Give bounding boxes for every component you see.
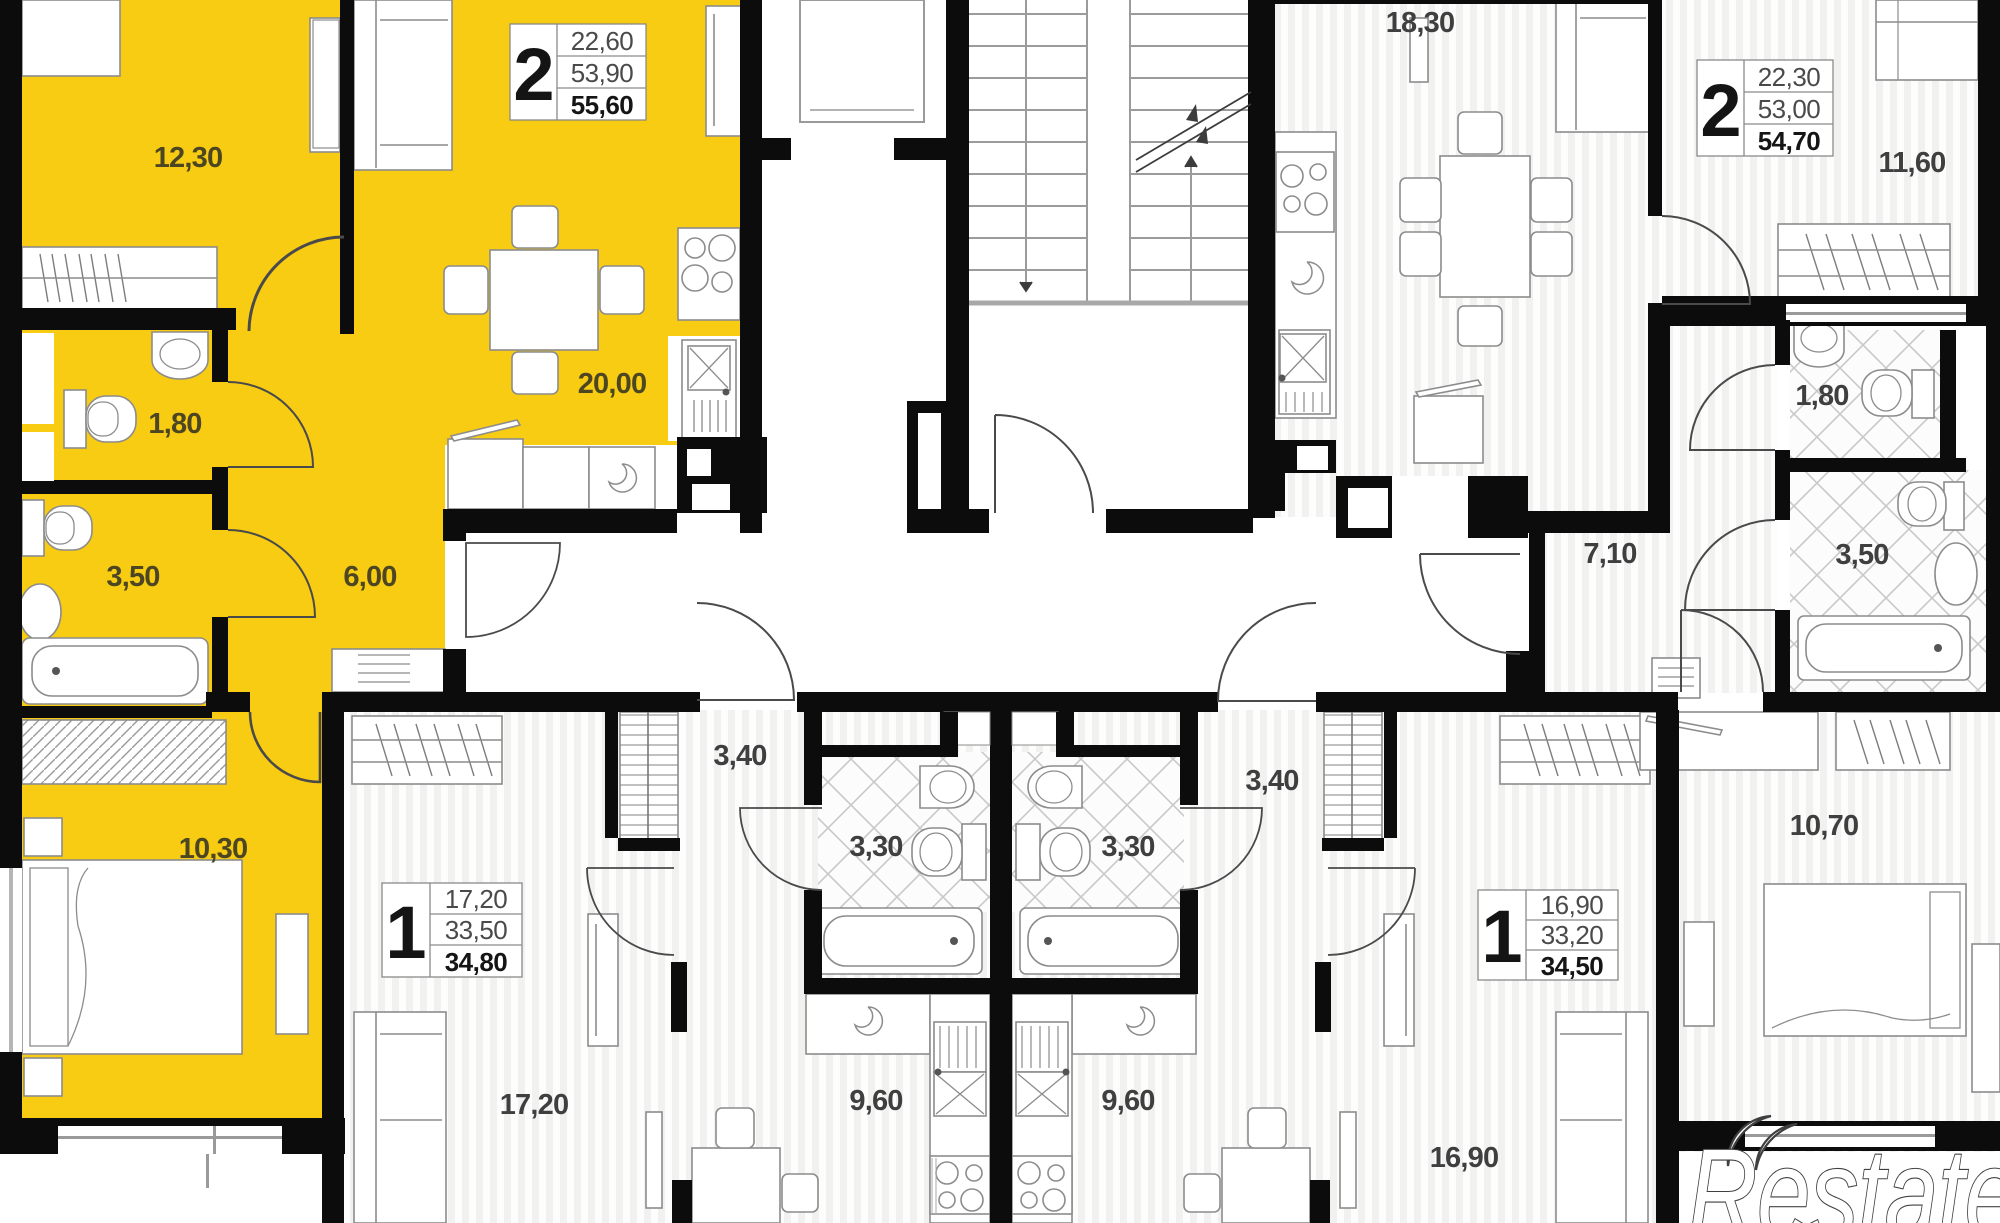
svg-text:12,30: 12,30 [154, 142, 223, 174]
svg-text:22,60: 22,60 [571, 26, 634, 56]
svg-text:1: 1 [1481, 895, 1522, 978]
svg-text:22,30: 22,30 [1758, 62, 1821, 92]
svg-text:9,60: 9,60 [1101, 1085, 1154, 1117]
svg-text:17,20: 17,20 [500, 1089, 569, 1121]
svg-text:10,30: 10,30 [179, 833, 248, 865]
svg-text:34,80: 34,80 [445, 947, 508, 977]
svg-text:16,90: 16,90 [1430, 1142, 1499, 1174]
svg-text:9,60: 9,60 [849, 1085, 902, 1117]
svg-text:3,40: 3,40 [1245, 765, 1298, 797]
svg-text:3,30: 3,30 [849, 831, 902, 863]
svg-text:16,90: 16,90 [1541, 890, 1604, 920]
svg-text:3,40: 3,40 [713, 740, 766, 772]
svg-text:34,50: 34,50 [1541, 951, 1604, 981]
svg-text:1: 1 [385, 891, 426, 974]
svg-text:6,00: 6,00 [343, 561, 396, 593]
svg-text:33,20: 33,20 [1541, 920, 1604, 950]
svg-text:Restate: Restate [1688, 1123, 2000, 1223]
svg-text:55,60: 55,60 [571, 90, 634, 120]
svg-text:1,80: 1,80 [1795, 380, 1848, 412]
svg-text:54,70: 54,70 [1758, 126, 1821, 156]
svg-text:20,00: 20,00 [578, 368, 647, 400]
svg-text:33,50: 33,50 [445, 915, 508, 945]
svg-text:2: 2 [1700, 69, 1741, 152]
svg-text:10,70: 10,70 [1790, 810, 1859, 842]
svg-text:18,30: 18,30 [1386, 7, 1455, 39]
svg-text:2: 2 [513, 33, 554, 116]
svg-text:3,30: 3,30 [1101, 831, 1154, 863]
svg-text:17,20: 17,20 [445, 884, 508, 914]
svg-text:53,90: 53,90 [571, 58, 634, 88]
svg-text:1,80: 1,80 [148, 408, 201, 440]
svg-text:53,00: 53,00 [1758, 94, 1821, 124]
svg-text:3,50: 3,50 [106, 561, 159, 593]
svg-text:11,60: 11,60 [1879, 147, 1946, 179]
svg-text:7,10: 7,10 [1583, 538, 1636, 570]
svg-text:3,50: 3,50 [1835, 539, 1888, 571]
